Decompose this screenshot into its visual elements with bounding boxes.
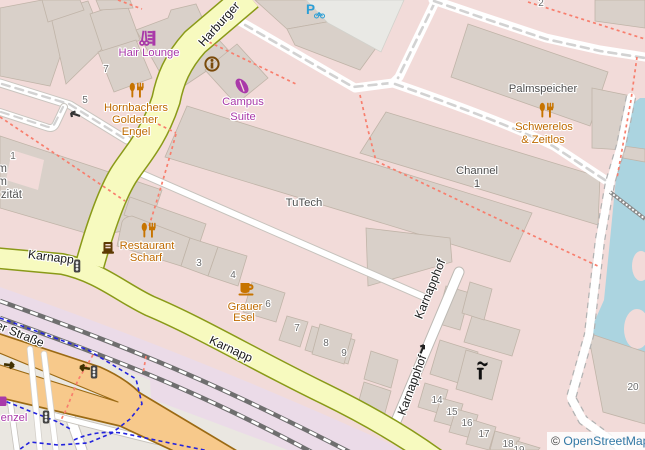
svg-text:Hair Lounge: Hair Lounge [119, 47, 180, 59]
svg-text:enzel: enzel [1, 412, 28, 424]
svg-text:Esel: Esel [233, 312, 255, 324]
svg-text:Suite: Suite [230, 111, 256, 123]
svg-text:© OpenStreetMap-: © OpenStreetMap- [551, 434, 645, 448]
svg-text:14: 14 [431, 395, 443, 406]
svg-text:TuTech: TuTech [286, 197, 323, 209]
svg-text:m: m [0, 163, 7, 175]
svg-text:Palmspeicher: Palmspeicher [509, 83, 578, 95]
svg-text:15: 15 [446, 407, 458, 418]
svg-text:19: 19 [513, 445, 525, 450]
svg-text:& Zeitlos: & Zeitlos [521, 134, 565, 146]
svg-text:1: 1 [10, 151, 16, 162]
svg-text:18: 18 [502, 439, 514, 450]
svg-text:Engel: Engel [122, 126, 151, 138]
svg-text:Restaurant: Restaurant [120, 240, 176, 252]
svg-text:zität: zität [1, 189, 23, 201]
svg-text:8: 8 [323, 338, 329, 349]
svg-text:P: P [306, 2, 315, 17]
svg-text:2: 2 [538, 0, 544, 9]
svg-text:7: 7 [294, 323, 300, 334]
svg-text:16: 16 [461, 418, 473, 429]
svg-text:5: 5 [82, 95, 88, 106]
svg-text:9: 9 [341, 348, 347, 359]
svg-text:Campus: Campus [222, 96, 264, 108]
svg-text:3: 3 [196, 258, 202, 269]
svg-text:m: m [0, 176, 7, 188]
svg-text:4: 4 [230, 270, 236, 281]
svg-text:Channel: Channel [456, 165, 498, 177]
svg-text:Scharf: Scharf [130, 252, 163, 264]
svg-text:1: 1 [474, 178, 480, 190]
svg-text:Goldener: Goldener [112, 114, 158, 126]
svg-text:7: 7 [103, 64, 109, 75]
svg-text:17: 17 [478, 429, 490, 440]
svg-text:Schwerelos: Schwerelos [515, 121, 573, 133]
svg-text:20: 20 [627, 382, 639, 393]
svg-text:6: 6 [265, 299, 271, 310]
svg-text:Hornbachers: Hornbachers [104, 102, 168, 114]
